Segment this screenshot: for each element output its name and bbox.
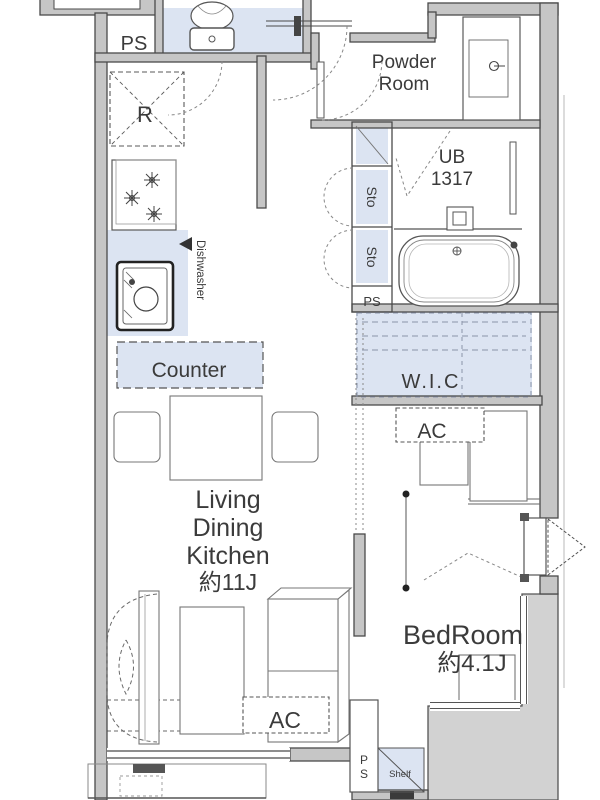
label-sto-lower: Sto [364, 246, 380, 267]
label-ac-living: AC [269, 707, 301, 733]
entry-door [520, 513, 585, 582]
lower-balcony [88, 764, 266, 798]
label-powder-room-1: Powder [372, 52, 437, 73]
label-ac-bedroom: AC [417, 420, 446, 443]
label-dishwasher: Dishwasher [194, 240, 206, 300]
label-wic: W.I.C [402, 371, 461, 393]
stove-icon [112, 160, 176, 230]
label-refrigerator: R [137, 102, 153, 127]
sink-icon [117, 262, 173, 330]
storage-door-swings [324, 168, 353, 288]
label-powder-room-2: Room [379, 74, 430, 95]
label-sto-upper: Sto [364, 186, 380, 207]
label-living-2: Dining [193, 514, 264, 542]
label-ub-1: UB [439, 147, 465, 168]
label-living-1: Living [195, 486, 260, 514]
label-bedroom-name: BedRoom [403, 620, 523, 650]
label-counter: Counter [152, 359, 227, 382]
label-ps-top: PS [121, 33, 148, 55]
label-ps-middle: PS [363, 294, 381, 309]
washbasin-icon [463, 17, 520, 120]
label-living-size: 約11J [199, 569, 257, 595]
label-ps-bottom-p: P [360, 753, 368, 767]
entry-door-swing-triangle [548, 519, 585, 575]
living-window [107, 748, 290, 761]
sofa-bed [107, 591, 159, 744]
living-table [180, 607, 244, 734]
label-bedroom-size: 約4.1J [437, 650, 506, 677]
label-shelf: Shelf [389, 769, 411, 780]
dining-set [114, 396, 318, 480]
label-living-3: Kitchen [186, 542, 269, 570]
label-ub-2: 1317 [431, 169, 473, 190]
floor-plan: PS R Powder Room UB 1317 Sto Sto PS Dish… [0, 0, 600, 800]
label-ps-bottom-s: S [360, 767, 368, 781]
toilet-door-swing [168, 61, 222, 115]
